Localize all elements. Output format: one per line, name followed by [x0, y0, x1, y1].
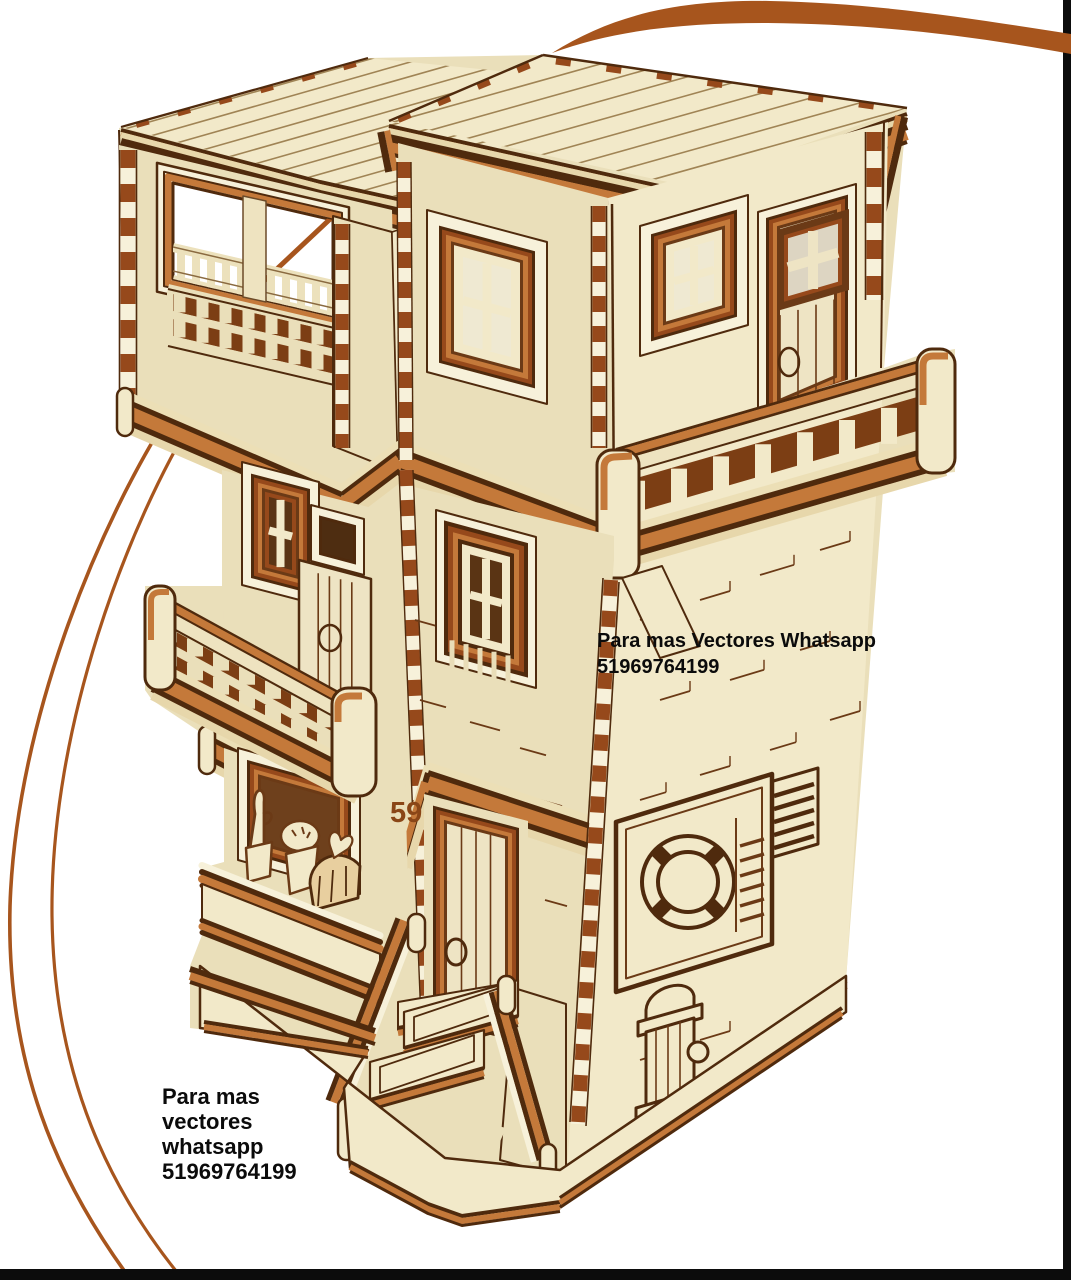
svg-text:vectores: vectores — [162, 1109, 253, 1134]
svg-text:51969764199: 51969764199 — [597, 656, 719, 678]
svg-text:Para mas: Para mas — [162, 1084, 260, 1109]
svg-text:whatsapp: whatsapp — [161, 1134, 263, 1159]
svg-text:51969764199: 51969764199 — [162, 1159, 297, 1184]
svg-text:59: 59 — [390, 797, 422, 829]
svg-text:Para mas Vectores Whatsapp: Para mas Vectores Whatsapp — [597, 630, 876, 652]
